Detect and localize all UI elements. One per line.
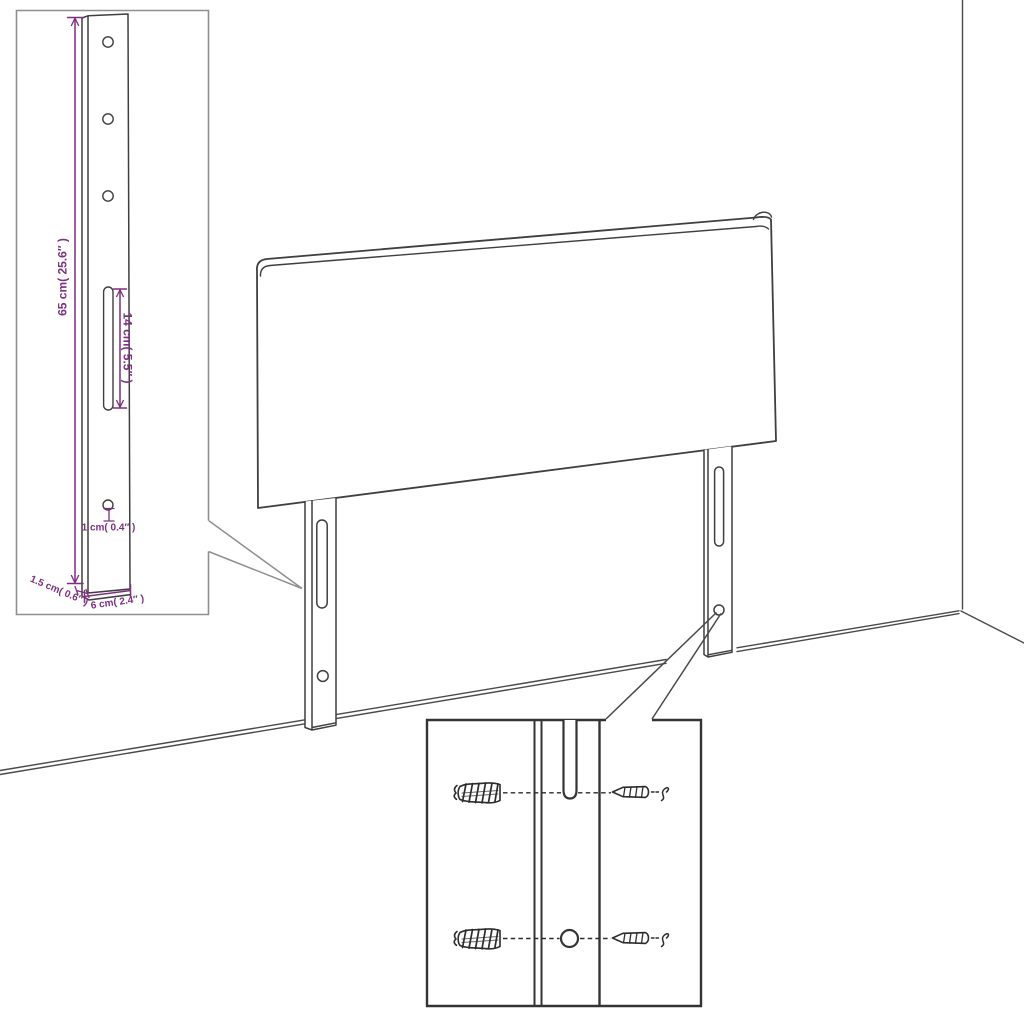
strip-slot xyxy=(564,720,577,799)
leg-detail-callout-lines xyxy=(209,521,303,589)
floor-line-right xyxy=(961,611,1024,643)
diagram-canvas: 65 cm( 25.6″ ) 14 cm( 5.5″ ) 1 cm( 0.4″ … xyxy=(0,0,1024,1024)
hole-dimension-label: 1 cm( 0.4″ ) xyxy=(82,523,136,534)
strip-hole xyxy=(561,930,578,947)
enlarged-leg-slot xyxy=(104,287,113,410)
slot-dimension-label: 14 cm( 5.5″ ) xyxy=(121,312,135,383)
left-leg-slot xyxy=(317,520,327,608)
leg-detail-inset: 65 cm( 25.6″ ) 14 cm( 5.5″ ) 1 cm( 0.4″ … xyxy=(17,11,209,615)
enlarged-leg-hole-top xyxy=(103,37,113,47)
right-leg-slot xyxy=(715,467,724,546)
enlarged-leg-hole-lower xyxy=(103,191,113,201)
right-mounting-leg xyxy=(704,446,732,657)
mounting-detail-inset xyxy=(427,720,701,1006)
enlarged-leg-hole-middle xyxy=(103,114,113,124)
height-dimension-label: 65 cm( 25.6″ ) xyxy=(56,238,70,316)
left-leg-hole xyxy=(317,671,328,682)
left-mounting-leg xyxy=(305,498,336,730)
leg-detail-callout xyxy=(209,521,303,589)
headboard-panel xyxy=(257,212,776,508)
